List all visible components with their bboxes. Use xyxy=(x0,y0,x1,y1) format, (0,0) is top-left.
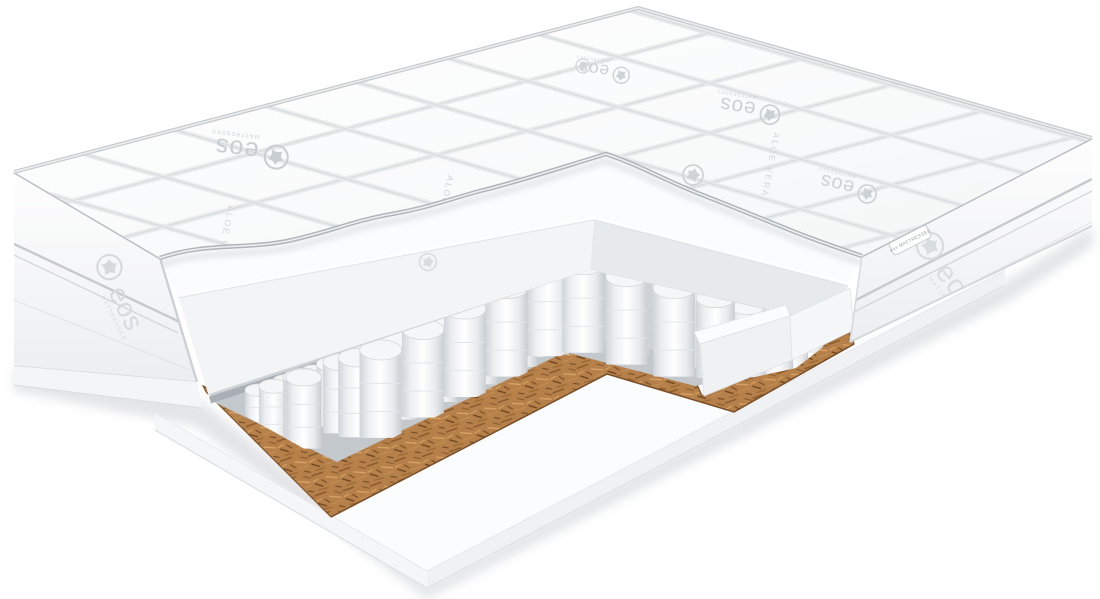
pocket-spring xyxy=(653,278,695,376)
pocket-spring xyxy=(360,340,402,438)
mattress-render: eos MATTRESSES eos MATTRESSES eos MATTRE… xyxy=(0,0,1100,599)
mattress-cutaway-illustration: eos MATTRESSES eos MATTRESSES eos MATTRE… xyxy=(0,0,1100,599)
pocket-spring xyxy=(286,369,322,449)
pocket-spring xyxy=(402,319,444,417)
